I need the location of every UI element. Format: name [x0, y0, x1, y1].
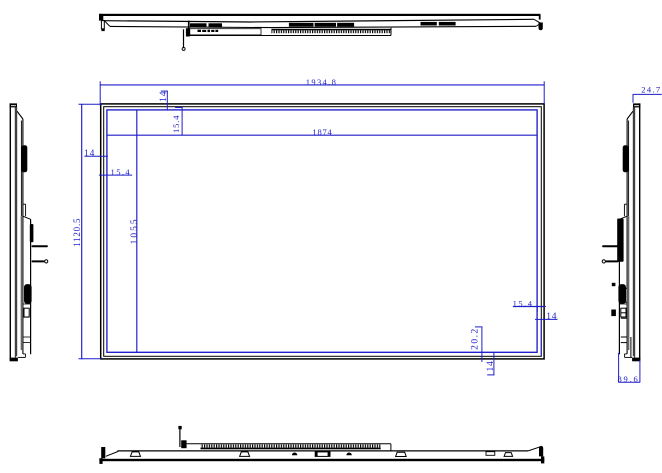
- svg-text:14: 14: [159, 91, 169, 102]
- svg-text:15.4: 15.4: [171, 115, 181, 133]
- svg-text:1934.8: 1934.8: [306, 77, 337, 87]
- svg-text:15.4: 15.4: [111, 167, 131, 177]
- svg-text:24.7: 24.7: [641, 85, 661, 95]
- svg-text:15.4: 15.4: [513, 298, 534, 308]
- svg-text:14: 14: [486, 360, 496, 371]
- svg-text:1874: 1874: [312, 127, 332, 137]
- svg-text:20.2: 20.2: [471, 327, 481, 350]
- svg-text:14: 14: [546, 312, 557, 322]
- svg-text:1055: 1055: [130, 217, 140, 244]
- svg-text:1120.5: 1120.5: [72, 218, 82, 247]
- svg-text:14: 14: [84, 149, 95, 159]
- svg-text:89.6: 89.6: [617, 374, 639, 384]
